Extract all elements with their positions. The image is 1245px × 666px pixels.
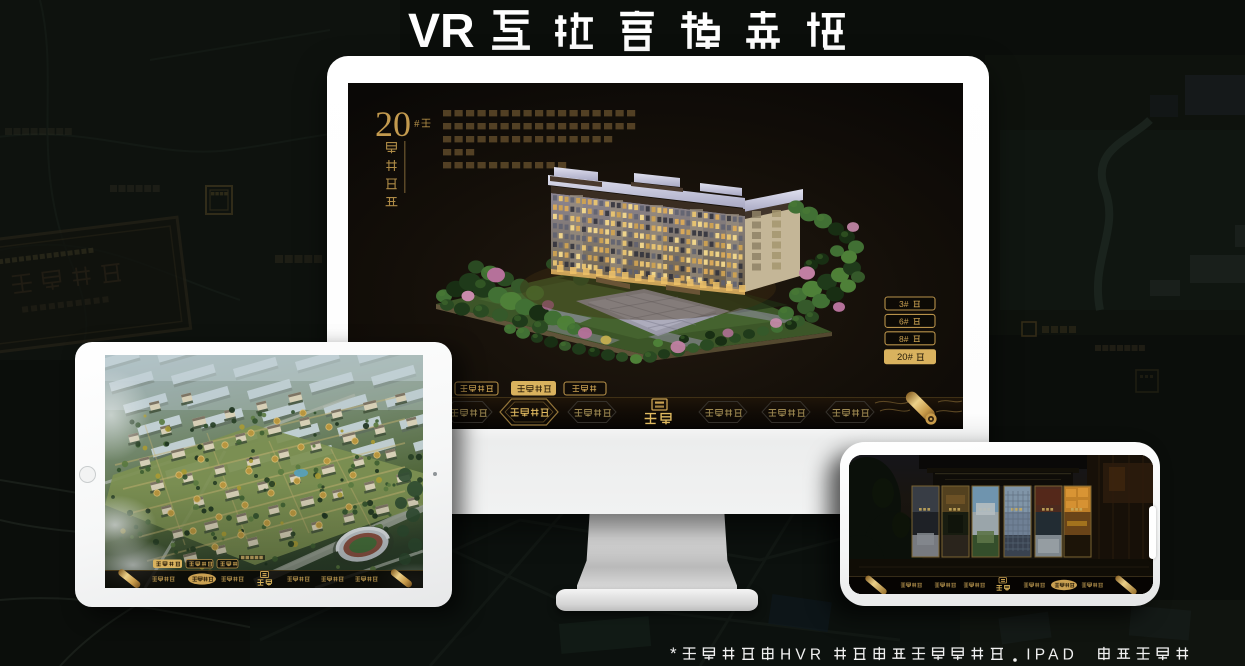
svg-text:HVR: HVR bbox=[780, 647, 825, 664]
svg-text:20#: 20# bbox=[897, 352, 914, 363]
svg-text:8#: 8# bbox=[899, 334, 909, 344]
svg-text:#: # bbox=[414, 118, 420, 130]
svg-text:20: 20 bbox=[375, 104, 411, 144]
svg-text:6#: 6# bbox=[899, 316, 909, 326]
svg-text:3#: 3# bbox=[899, 299, 909, 309]
svg-text:VR: VR bbox=[408, 5, 475, 58]
svg-text:*: * bbox=[670, 644, 677, 663]
svg-text:IPAD: IPAD bbox=[1026, 647, 1078, 664]
